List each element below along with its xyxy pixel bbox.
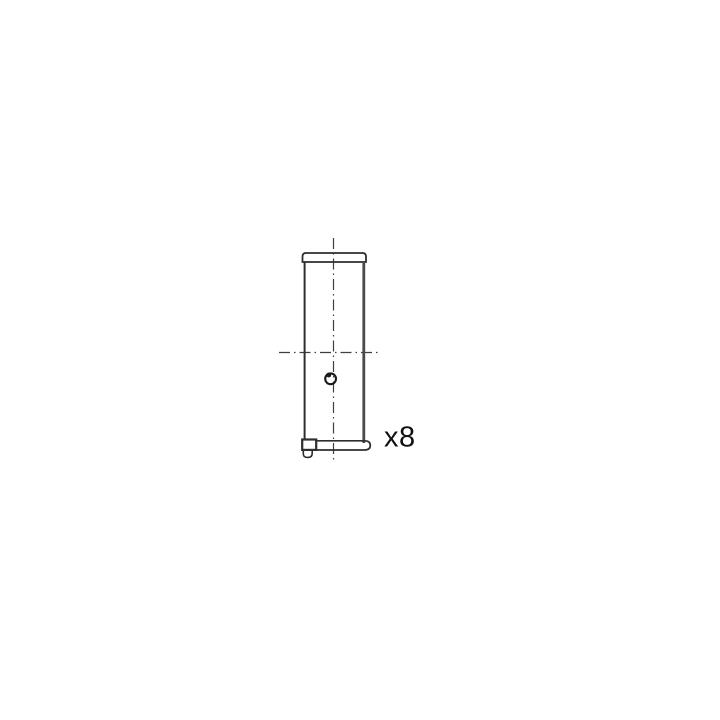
- oil-hole-highlight: [326, 373, 331, 378]
- product-image-canvas: x8: [0, 0, 720, 720]
- shell-top-flange: [303, 253, 367, 262]
- bearing-shell-technical-drawing: x8: [0, 0, 720, 720]
- oil-hole-group: [325, 373, 336, 385]
- shell-outline: [302, 253, 370, 457]
- quantity-label: x8: [384, 422, 416, 454]
- locating-notch: [302, 440, 316, 450]
